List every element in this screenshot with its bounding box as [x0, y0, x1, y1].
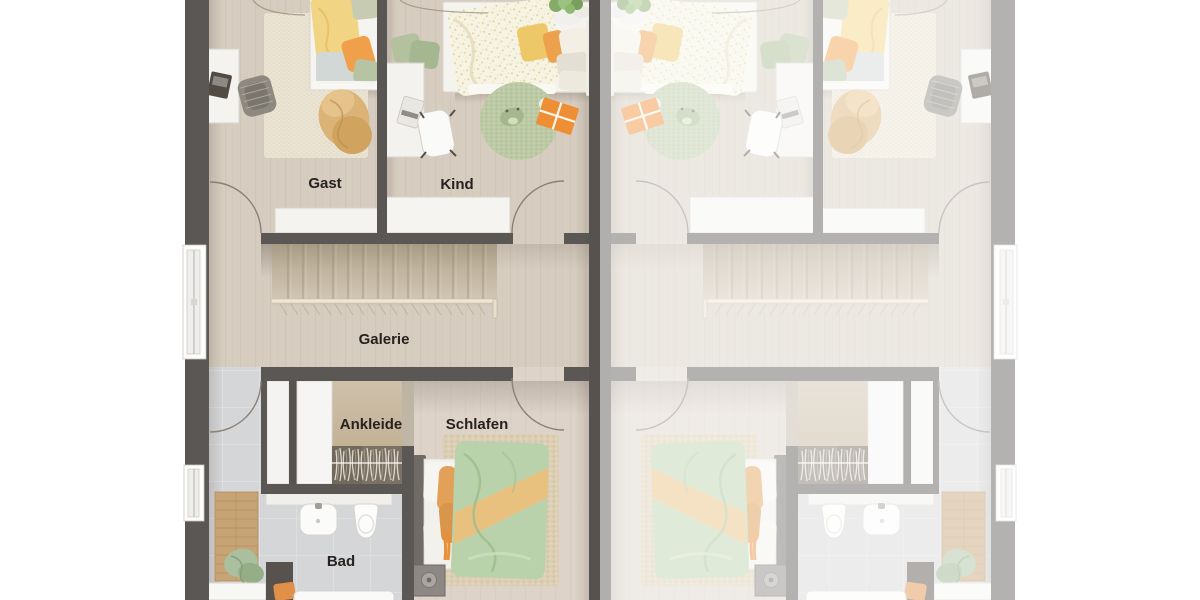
- svg-text:Kind: Kind: [440, 176, 473, 193]
- svg-text:Schlafen: Schlafen: [446, 416, 509, 433]
- svg-text:Bad: Bad: [327, 553, 355, 570]
- svg-text:Ankleide: Ankleide: [340, 416, 403, 433]
- svg-text:Gast: Gast: [308, 175, 341, 192]
- svg-text:Galerie: Galerie: [359, 331, 410, 348]
